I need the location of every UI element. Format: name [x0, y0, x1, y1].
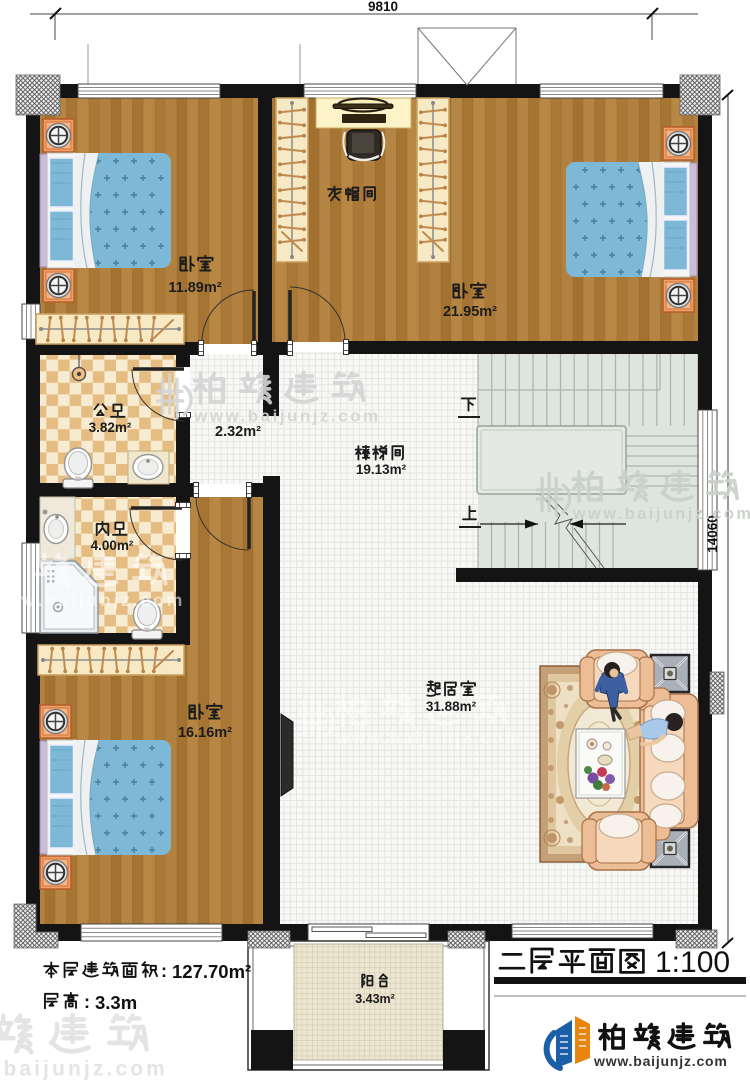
svg-text:19.13m²: 19.13m² [356, 462, 407, 477]
svg-text:4.00m²: 4.00m² [91, 538, 134, 553]
svg-text:www.baijunjz.com: www.baijunjz.com [572, 505, 750, 523]
svg-text::: : [84, 992, 90, 1012]
svg-text:1:100: 1:100 [655, 946, 730, 979]
svg-text:www.baijunjz.com: www.baijunjz.com [0, 590, 185, 610]
svg-text:2.32m²: 2.32m² [215, 424, 261, 440]
svg-text:16.16m²: 16.16m² [178, 725, 232, 741]
svg-text:www.baijunjz.com: www.baijunjz.com [0, 1058, 168, 1081]
svg-text:31.88m²: 31.88m² [426, 699, 477, 714]
svg-text:www.baijunjz.com: www.baijunjz.com [335, 729, 522, 748]
svg-text:127.70m²: 127.70m² [172, 961, 251, 982]
svg-text:3.82m²: 3.82m² [89, 420, 132, 435]
svg-text:www.baijunjz.com: www.baijunjz.com [193, 406, 380, 425]
svg-text:9810: 9810 [368, 0, 398, 14]
svg-text:3.3m: 3.3m [95, 992, 137, 1013]
svg-text:www.baijunjz.com: www.baijunjz.com [593, 1053, 728, 1069]
svg-text:21.95m²: 21.95m² [443, 304, 497, 320]
svg-text:11.89m²: 11.89m² [168, 280, 221, 296]
svg-text::: : [161, 961, 167, 981]
svg-text:3.43m²: 3.43m² [355, 992, 395, 1006]
